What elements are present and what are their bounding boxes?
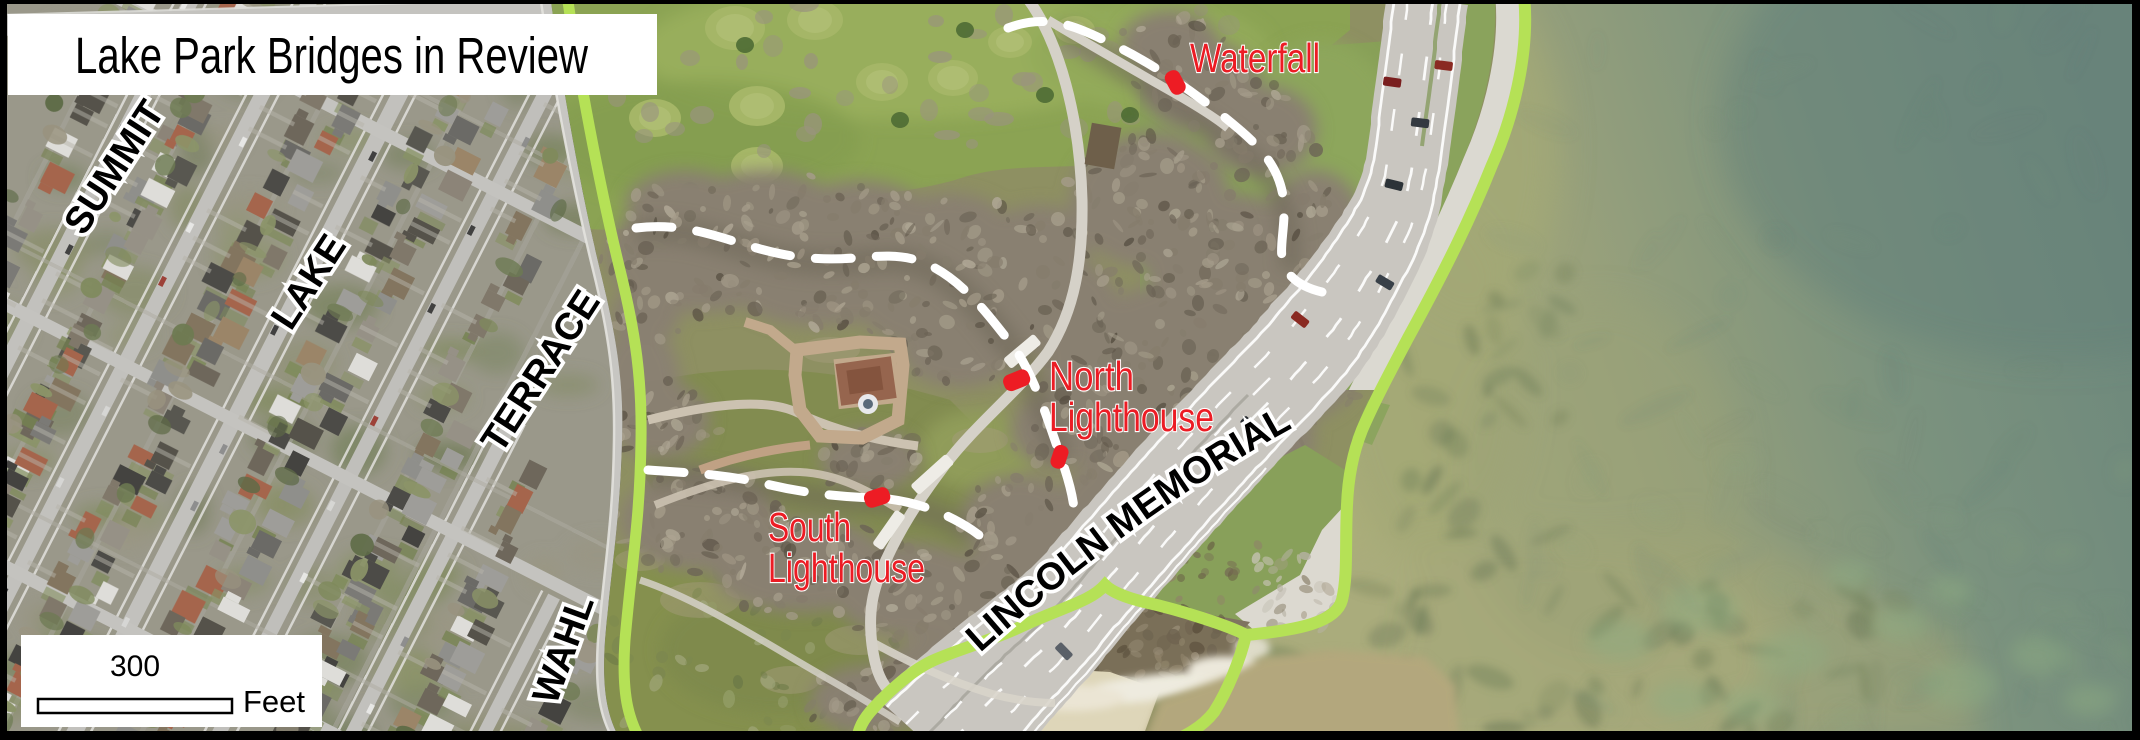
svg-text:Lighthouse: Lighthouse: [1049, 394, 1214, 440]
svg-text:Feet: Feet: [243, 684, 305, 719]
svg-text:Waterfall: Waterfall: [1190, 35, 1320, 81]
svg-text:Lighthouse: Lighthouse: [768, 545, 925, 591]
svg-text:North: North: [1049, 353, 1134, 399]
svg-text:South: South: [768, 504, 851, 550]
svg-text:300: 300: [110, 650, 160, 683]
svg-text:Lake Park Bridges in Review: Lake Park Bridges in Review: [75, 27, 588, 84]
